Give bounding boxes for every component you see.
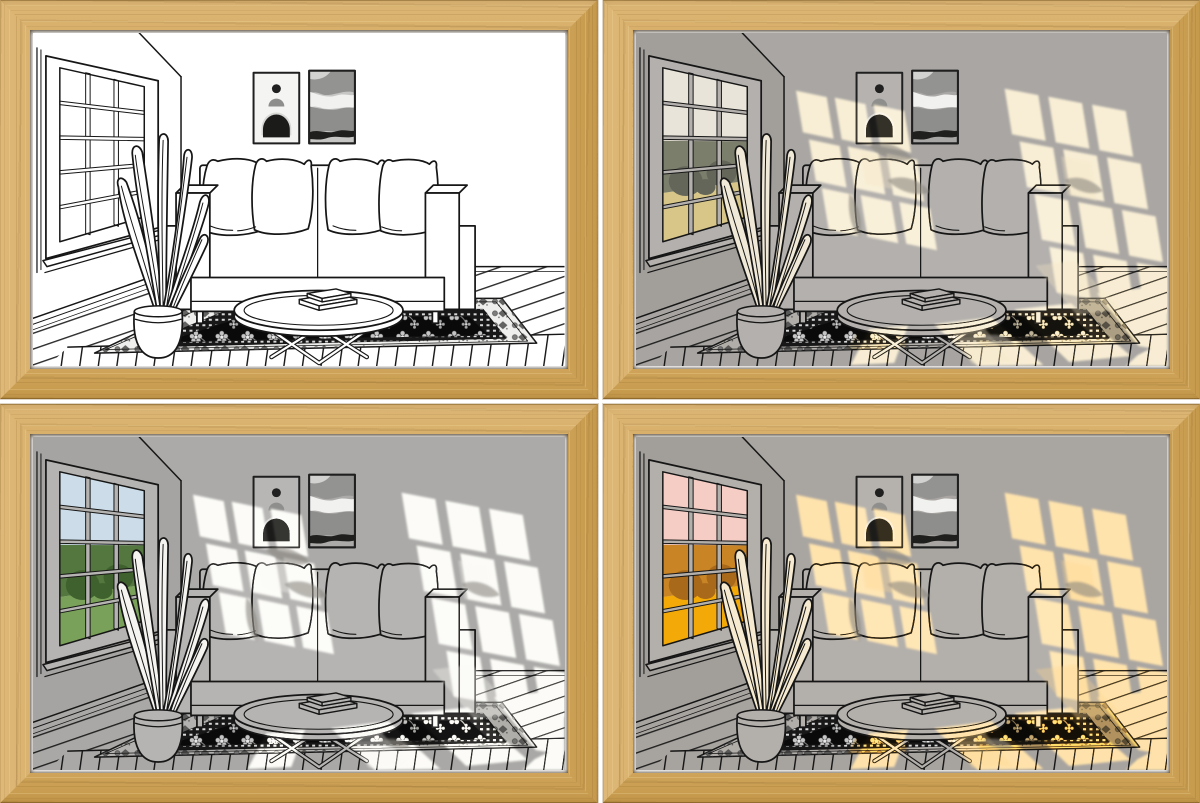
art-mat: [633, 30, 1171, 369]
framed-art-variant-4: [603, 404, 1200, 803]
framed-art-variant-2: [603, 0, 1200, 399]
product-image-grid: [0, 0, 1200, 803]
art-mat: [633, 434, 1171, 773]
wood-frame: [0, 404, 598, 803]
framed-art-variant-3: [0, 404, 598, 803]
wood-frame: [603, 404, 1200, 803]
artwork-mode-golden: [636, 437, 1168, 770]
art-mat: [30, 434, 568, 773]
wood-frame: [0, 0, 598, 399]
artwork-mode-off: [33, 33, 565, 366]
wood-frame: [603, 0, 1200, 399]
framed-art-variant-1: [0, 0, 598, 399]
art-mat: [30, 30, 568, 369]
artwork-mode-warm: [636, 33, 1168, 366]
artwork-mode-daylight: [33, 437, 565, 770]
